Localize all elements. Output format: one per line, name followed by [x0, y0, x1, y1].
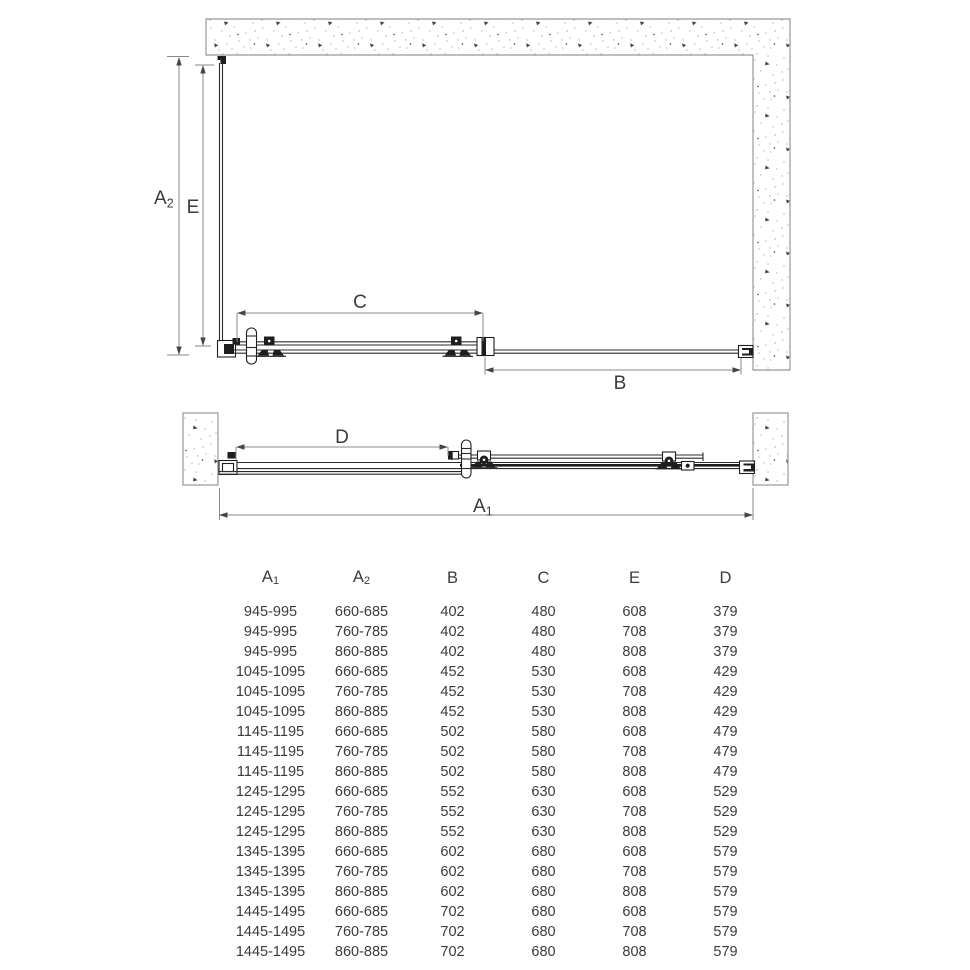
table-cell: 379 [680, 622, 771, 642]
column-header: A1 [225, 567, 316, 602]
page: A2 E [0, 0, 970, 970]
track-assembly [219, 440, 755, 478]
table-cell: 429 [680, 682, 771, 702]
table-row: 1145-1195660-685502580608479 [225, 722, 771, 742]
table-cell: 708 [589, 682, 680, 702]
table-cell: 479 [680, 722, 771, 742]
table-cell: 760-785 [316, 682, 407, 702]
table-cell: 552 [407, 802, 498, 822]
table-row: 1345-1395660-685602680608579 [225, 842, 771, 862]
table-cell: 452 [407, 662, 498, 682]
table-row: 1345-1395860-885602680808579 [225, 882, 771, 902]
table-cell: 680 [498, 942, 589, 962]
table-row: 1145-1195860-885502580808479 [225, 762, 771, 782]
table-cell: 945-995 [225, 602, 316, 622]
table-cell: 1045-1095 [225, 662, 316, 682]
table-cell: 1245-1295 [225, 782, 316, 802]
table-cell: 708 [589, 862, 680, 882]
wall-right [753, 413, 788, 485]
table-cell: 429 [680, 702, 771, 722]
table-cell: 608 [589, 842, 680, 862]
table-row: 1345-1395760-785602680708579 [225, 862, 771, 882]
table-cell: 860-885 [316, 762, 407, 782]
table-cell: 702 [407, 922, 498, 942]
column-header: B [407, 567, 498, 602]
table-cell: 1045-1095 [225, 702, 316, 722]
table-row: 1045-1095860-885452530808429 [225, 702, 771, 722]
table-cell: 1345-1395 [225, 882, 316, 902]
table-cell: 1345-1395 [225, 862, 316, 882]
table-cell: 808 [589, 822, 680, 842]
table-row: 945-995660-685402480608379 [225, 602, 771, 622]
table-cell: 1345-1395 [225, 842, 316, 862]
table-cell: 479 [680, 742, 771, 762]
wall-left [183, 413, 218, 485]
table-cell: 530 [498, 682, 589, 702]
table-cell: 580 [498, 742, 589, 762]
table-cell: 708 [589, 922, 680, 942]
table-cell: 479 [680, 762, 771, 782]
table-cell: 579 [680, 862, 771, 882]
table-cell: 608 [589, 602, 680, 622]
table-cell: 480 [498, 602, 589, 622]
table-cell: 760-785 [316, 622, 407, 642]
table-cell: 602 [407, 882, 498, 902]
dim-label-a1: A1 [473, 496, 493, 519]
table-row: 1245-1295860-885552630808529 [225, 822, 771, 842]
dim-d: D [236, 427, 448, 460]
table-row: 1145-1195760-785502580708479 [225, 742, 771, 762]
table-cell: 760-785 [316, 862, 407, 882]
table-cell: 680 [498, 842, 589, 862]
panel-connector [477, 338, 494, 356]
table-cell: 529 [680, 822, 771, 842]
dim-label-b: B [614, 373, 627, 394]
table-row: 1445-1495860-885702680808579 [225, 942, 771, 962]
table-cell: 452 [407, 682, 498, 702]
dim-a2: A2 [154, 57, 189, 356]
table-cell: 860-885 [316, 822, 407, 842]
table-cell: 379 [680, 602, 771, 622]
table-cell: 1045-1095 [225, 682, 316, 702]
table-cell: 680 [498, 902, 589, 922]
table-cell: 530 [498, 702, 589, 722]
dim-e: E [187, 65, 214, 346]
table-cell: 1145-1195 [225, 742, 316, 762]
table-cell: 760-785 [316, 802, 407, 822]
table-cell: 502 [407, 762, 498, 782]
table-cell: 1145-1195 [225, 762, 316, 782]
table-cell: 808 [589, 702, 680, 722]
table-cell: 530 [498, 662, 589, 682]
table-row: 945-995760-785402480708379 [225, 622, 771, 642]
table-cell: 502 [407, 742, 498, 762]
table-cell: 1445-1495 [225, 922, 316, 942]
table-cell: 660-685 [316, 902, 407, 922]
table-cell: 429 [680, 662, 771, 682]
table-cell: 480 [498, 622, 589, 642]
wall-bracket [739, 346, 754, 358]
table-cell: 579 [680, 942, 771, 962]
section-view: D A1 [183, 413, 788, 520]
table-cell: 860-885 [316, 942, 407, 962]
table-cell: 608 [589, 782, 680, 802]
table-cell: 1445-1495 [225, 942, 316, 962]
table-cell: 402 [407, 602, 498, 622]
size-table-header-row: A1A2BCED [225, 567, 771, 602]
door-handle [247, 328, 257, 364]
column-header: D [680, 567, 771, 602]
table-cell: 452 [407, 702, 498, 722]
table-cell: 402 [407, 642, 498, 662]
dim-label-e: E [187, 197, 200, 218]
table-cell: 630 [498, 782, 589, 802]
guide-block [682, 462, 695, 471]
table-cell: 608 [589, 722, 680, 742]
table-cell: 379 [680, 642, 771, 662]
table-cell: 579 [680, 922, 771, 942]
column-header: A2 [316, 567, 407, 602]
table-row: 1045-1095760-785452530708429 [225, 682, 771, 702]
table-cell: 630 [498, 822, 589, 842]
table-cell: 580 [498, 722, 589, 742]
table-cell: 579 [680, 902, 771, 922]
wall-top-right [206, 19, 790, 370]
table-cell: 808 [589, 642, 680, 662]
table-cell: 529 [680, 802, 771, 822]
sliding-door-assembly [233, 328, 754, 364]
table-cell: 502 [407, 722, 498, 742]
dim-label-a2: A2 [154, 188, 174, 211]
column-header: C [498, 567, 589, 602]
table-cell: 945-995 [225, 642, 316, 662]
table-cell: 680 [498, 882, 589, 902]
table-cell: 680 [498, 862, 589, 882]
table-cell: 579 [680, 882, 771, 902]
table-cell: 1245-1295 [225, 802, 316, 822]
table-cell: 608 [589, 902, 680, 922]
table-cell: 402 [407, 622, 498, 642]
table-cell: 580 [498, 762, 589, 782]
table-cell: 660-685 [316, 662, 407, 682]
size-table-body: 945-995660-685402480608379945-995760-785… [225, 602, 771, 962]
dim-label-c: C [353, 292, 367, 313]
table-cell: 702 [407, 942, 498, 962]
table-cell: 808 [589, 942, 680, 962]
table-cell: 708 [589, 802, 680, 822]
table-cell: 660-685 [316, 842, 407, 862]
table-cell: 660-685 [316, 782, 407, 802]
table-cell: 602 [407, 842, 498, 862]
table-cell: 760-785 [316, 922, 407, 942]
wall-profile-right [740, 461, 755, 474]
table-cell: 1245-1295 [225, 822, 316, 842]
table-row: 1445-1495760-785702680708579 [225, 922, 771, 942]
table-cell: 1145-1195 [225, 722, 316, 742]
table-cell: 660-685 [316, 722, 407, 742]
table-cell: 552 [407, 822, 498, 842]
dim-label-d: D [335, 427, 349, 448]
table-cell: 808 [589, 882, 680, 902]
table-cell: 552 [407, 782, 498, 802]
dim-a1: A1 [219, 488, 753, 520]
table-cell: 945-995 [225, 622, 316, 642]
table-row: 1045-1095660-685452530608429 [225, 662, 771, 682]
table-cell: 608 [589, 662, 680, 682]
table-cell: 529 [680, 782, 771, 802]
dim-c: C [237, 292, 483, 342]
table-cell: 680 [498, 922, 589, 942]
door-handle [462, 440, 472, 478]
technical-drawing: A2 E [0, 0, 970, 560]
table-cell: 760-785 [316, 742, 407, 762]
table-cell: 480 [498, 642, 589, 662]
size-table: A1A2BCED 945-995660-685402480608379945-9… [225, 567, 771, 962]
dim-b: B [485, 357, 741, 394]
table-cell: 808 [589, 762, 680, 782]
table-cell: 630 [498, 802, 589, 822]
table-row: 1445-1495660-685702680608579 [225, 902, 771, 922]
table-cell: 602 [407, 862, 498, 882]
table-row: 1245-1295660-685552630608529 [225, 782, 771, 802]
table-cell: 579 [680, 842, 771, 862]
table-cell: 860-885 [316, 882, 407, 902]
plan-view: A2 E [154, 19, 790, 394]
table-cell: 708 [589, 622, 680, 642]
table-row: 1245-1295760-785552630708529 [225, 802, 771, 822]
column-header: E [589, 567, 680, 602]
table-cell: 1445-1495 [225, 902, 316, 922]
table-cell: 660-685 [316, 602, 407, 622]
door-edge-connector [449, 452, 459, 460]
table-cell: 860-885 [316, 702, 407, 722]
side-glass-panel [218, 56, 227, 341]
table-row: 945-995860-885402480808379 [225, 642, 771, 662]
table-cell: 860-885 [316, 642, 407, 662]
table-cell: 708 [589, 742, 680, 762]
table-cell: 702 [407, 902, 498, 922]
